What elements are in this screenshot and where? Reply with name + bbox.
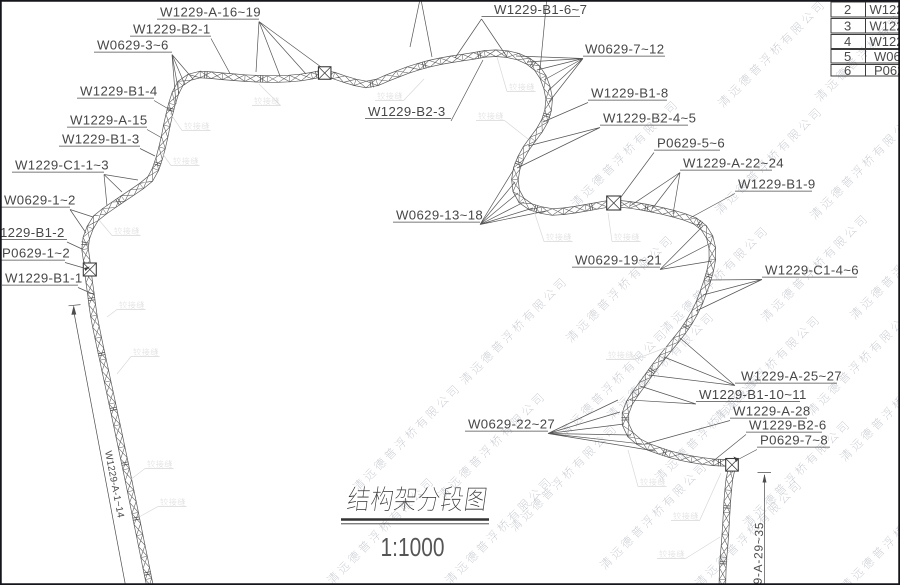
svg-text:P0629-7~8: P0629-7~8: [760, 433, 828, 448]
svg-text:5: 5: [844, 49, 851, 64]
svg-text:W1229-A-16~19: W1229-A-16~19: [160, 5, 261, 20]
svg-text:W1229-B1-1: W1229-B1-1: [5, 271, 83, 286]
svg-text:W1229-B1-6~7: W1229-B1-6~7: [494, 2, 587, 17]
svg-text:W1229-B2-6: W1229-B2-6: [749, 418, 827, 433]
svg-text:W1229-C1-1~3: W1229-C1-1~3: [15, 158, 109, 173]
svg-text:1:1000: 1:1000: [381, 534, 445, 562]
svg-text:W0629-3~6: W0629-3~6: [97, 38, 169, 53]
svg-text:W1229-B2-4~5: W1229-B2-4~5: [603, 111, 696, 126]
svg-text:W0629-22~27: W0629-22~27: [468, 417, 555, 432]
svg-text:6: 6: [844, 63, 851, 78]
svg-text:W1229-: W1229-: [870, 2, 900, 17]
svg-text:W0629-: W0629-: [874, 49, 900, 64]
svg-text:W0629-7~12: W0629-7~12: [585, 42, 664, 57]
svg-text:W1229-B1-8: W1229-B1-8: [591, 86, 669, 101]
svg-text:4: 4: [844, 34, 851, 49]
svg-text:W1229-B1-3: W1229-B1-3: [62, 132, 140, 147]
svg-text:W1229-C1-4~6: W1229-C1-4~6: [765, 263, 859, 278]
svg-text:W1229-A-28: W1229-A-28: [733, 404, 811, 419]
svg-text:W1229-B2-1: W1229-B2-1: [133, 22, 211, 37]
svg-text:W1229-B2-3: W1229-B2-3: [368, 104, 446, 119]
svg-text:P0629-: P0629-: [874, 63, 900, 78]
svg-text:W1229-A-25~27: W1229-A-25~27: [741, 369, 842, 384]
svg-text:W1229-B1-9: W1229-B1-9: [738, 177, 816, 192]
svg-text:W1229-A-29~35: W1229-A-29~35: [750, 522, 767, 585]
svg-text:W1229-A-22~24: W1229-A-22~24: [683, 156, 784, 171]
svg-text:W0629-13~18: W0629-13~18: [396, 208, 483, 223]
svg-text:3: 3: [844, 18, 851, 33]
svg-text:W1229-: W1229-: [870, 18, 900, 33]
svg-text:1229-B1-2: 1229-B1-2: [0, 225, 65, 240]
svg-text:W1229-B1-10~11: W1229-B1-10~11: [699, 387, 807, 402]
svg-text:P0629-1~2: P0629-1~2: [2, 246, 70, 261]
svg-text:2: 2: [844, 2, 851, 17]
svg-text:W1229-A-15: W1229-A-15: [70, 113, 148, 128]
svg-text:W0629-1~2: W0629-1~2: [4, 193, 76, 208]
svg-text:W1229-: W1229-: [870, 34, 900, 49]
svg-text:P0629-5~6: P0629-5~6: [657, 136, 725, 151]
svg-text:W1229-B1-4: W1229-B1-4: [80, 84, 158, 99]
svg-text:W0629-19~21: W0629-19~21: [575, 253, 662, 268]
